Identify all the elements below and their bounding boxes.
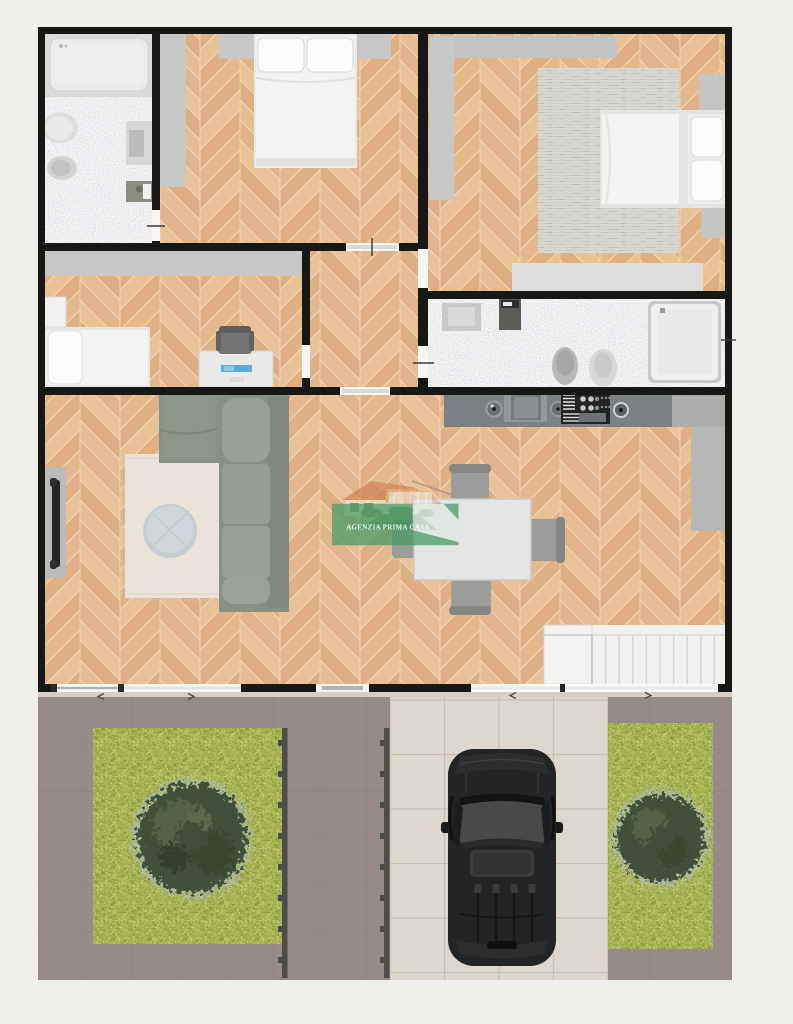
svg-text:AGENZIA PRIMA CASA: AGENZIA PRIMA CASA — [346, 524, 430, 532]
